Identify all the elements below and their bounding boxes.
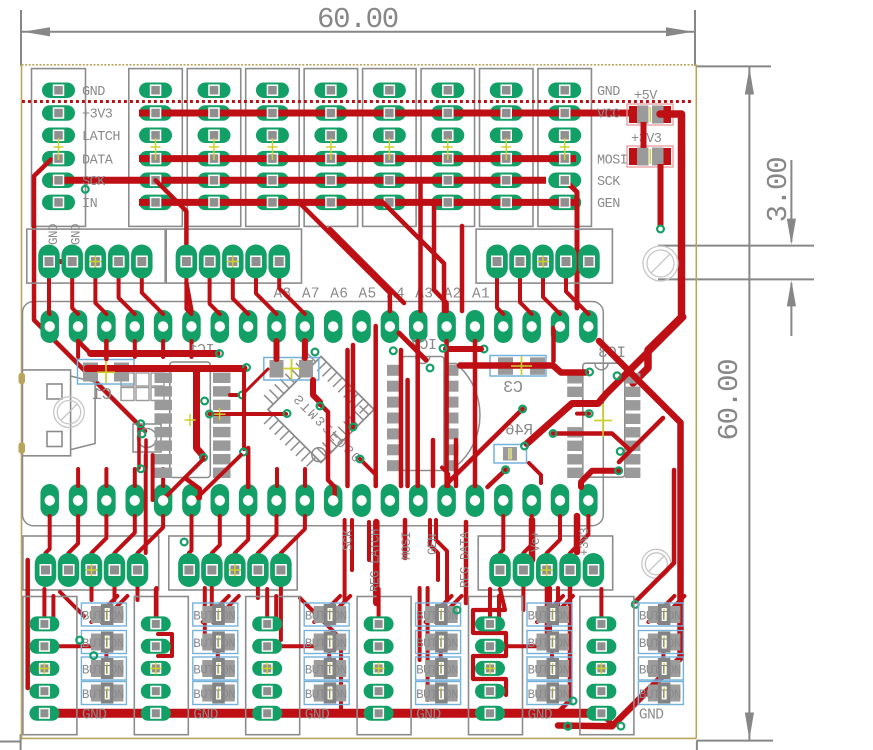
svg-text:3.00: 3.00 bbox=[762, 158, 795, 223]
svg-text:BUTTON: BUTTON bbox=[193, 637, 235, 651]
svg-text:MOSI: MOSI bbox=[400, 532, 414, 560]
svg-text:BUTTON: BUTTON bbox=[528, 688, 570, 702]
svg-text:BUTTON: BUTTON bbox=[528, 637, 570, 651]
svg-text:BUTTON: BUTTON bbox=[305, 664, 347, 678]
svg-text:60.00: 60.00 bbox=[317, 3, 398, 36]
svg-text:A5: A5 bbox=[359, 287, 377, 303]
svg-text:BUTTON: BUTTON bbox=[82, 610, 124, 624]
svg-text:VCC: VCC bbox=[597, 108, 620, 123]
svg-text:LATCH: LATCH bbox=[82, 130, 120, 145]
svg-text:GND: GND bbox=[82, 708, 107, 724]
svg-text:GND: GND bbox=[528, 708, 553, 724]
svg-text:IN: IN bbox=[82, 197, 98, 212]
svg-text:BUTTON: BUTTON bbox=[193, 688, 235, 702]
svg-text:GEN: GEN bbox=[597, 197, 620, 212]
svg-text:GND: GND bbox=[597, 85, 620, 100]
svg-text:BUTTON: BUTTON bbox=[193, 610, 235, 624]
svg-text:GND: GND bbox=[639, 708, 664, 724]
svg-text:C3: C3 bbox=[503, 379, 523, 398]
svg-text:SCK: SCK bbox=[342, 529, 356, 551]
svg-text:REG DATA: REG DATA bbox=[458, 531, 472, 588]
svg-text:GEN: GEN bbox=[426, 534, 440, 555]
svg-text:+3V3: +3V3 bbox=[82, 108, 113, 123]
svg-text:C1: C1 bbox=[92, 386, 112, 405]
svg-text:BUTTON: BUTTON bbox=[416, 637, 458, 651]
svg-text:BUTTON: BUTTON bbox=[639, 637, 681, 651]
svg-text:BUTTON: BUTTON bbox=[528, 610, 570, 624]
svg-text:GND: GND bbox=[70, 224, 84, 245]
svg-text:BUTTON: BUTTON bbox=[416, 688, 458, 702]
svg-text:BUTTON: BUTTON bbox=[639, 664, 681, 678]
svg-text:+3V3: +3V3 bbox=[578, 528, 592, 556]
svg-text:BUTTON: BUTTON bbox=[416, 664, 458, 678]
svg-text:BUTTON: BUTTON bbox=[639, 610, 681, 624]
svg-text:A3: A3 bbox=[415, 287, 433, 303]
svg-text:A7: A7 bbox=[302, 287, 320, 303]
svg-text:BUTTON: BUTTON bbox=[193, 664, 235, 678]
svg-text:BUTTON: BUTTON bbox=[528, 664, 570, 678]
svg-text:GND: GND bbox=[416, 708, 441, 724]
svg-text:SCK: SCK bbox=[597, 175, 621, 190]
svg-text:+5V: +5V bbox=[634, 89, 658, 104]
svg-text:BUTTON: BUTTON bbox=[639, 688, 681, 702]
svg-text:GND: GND bbox=[193, 708, 218, 724]
svg-text:GND: GND bbox=[47, 224, 61, 245]
svg-text:60.00: 60.00 bbox=[713, 359, 746, 440]
svg-text:GND: GND bbox=[305, 708, 330, 724]
svg-text:SCK: SCK bbox=[82, 175, 106, 190]
svg-text:Ve+: Ve+ bbox=[529, 531, 543, 552]
svg-text:GND: GND bbox=[82, 85, 105, 100]
svg-text:BUTTON: BUTTON bbox=[82, 664, 124, 678]
svg-text:A6: A6 bbox=[330, 287, 348, 303]
svg-text:BUTTON: BUTTON bbox=[305, 688, 347, 702]
svg-text:MOSI: MOSI bbox=[597, 153, 627, 168]
svg-text:BUTTON: BUTTON bbox=[416, 610, 458, 624]
svg-text:BUTTON: BUTTON bbox=[305, 637, 347, 651]
svg-text:BUTTON: BUTTON bbox=[82, 637, 124, 651]
svg-text:A1: A1 bbox=[472, 287, 490, 303]
svg-text:BUTTON: BUTTON bbox=[82, 688, 124, 702]
svg-text:DATA: DATA bbox=[82, 153, 114, 168]
svg-text:BUTTON: BUTTON bbox=[305, 610, 347, 624]
